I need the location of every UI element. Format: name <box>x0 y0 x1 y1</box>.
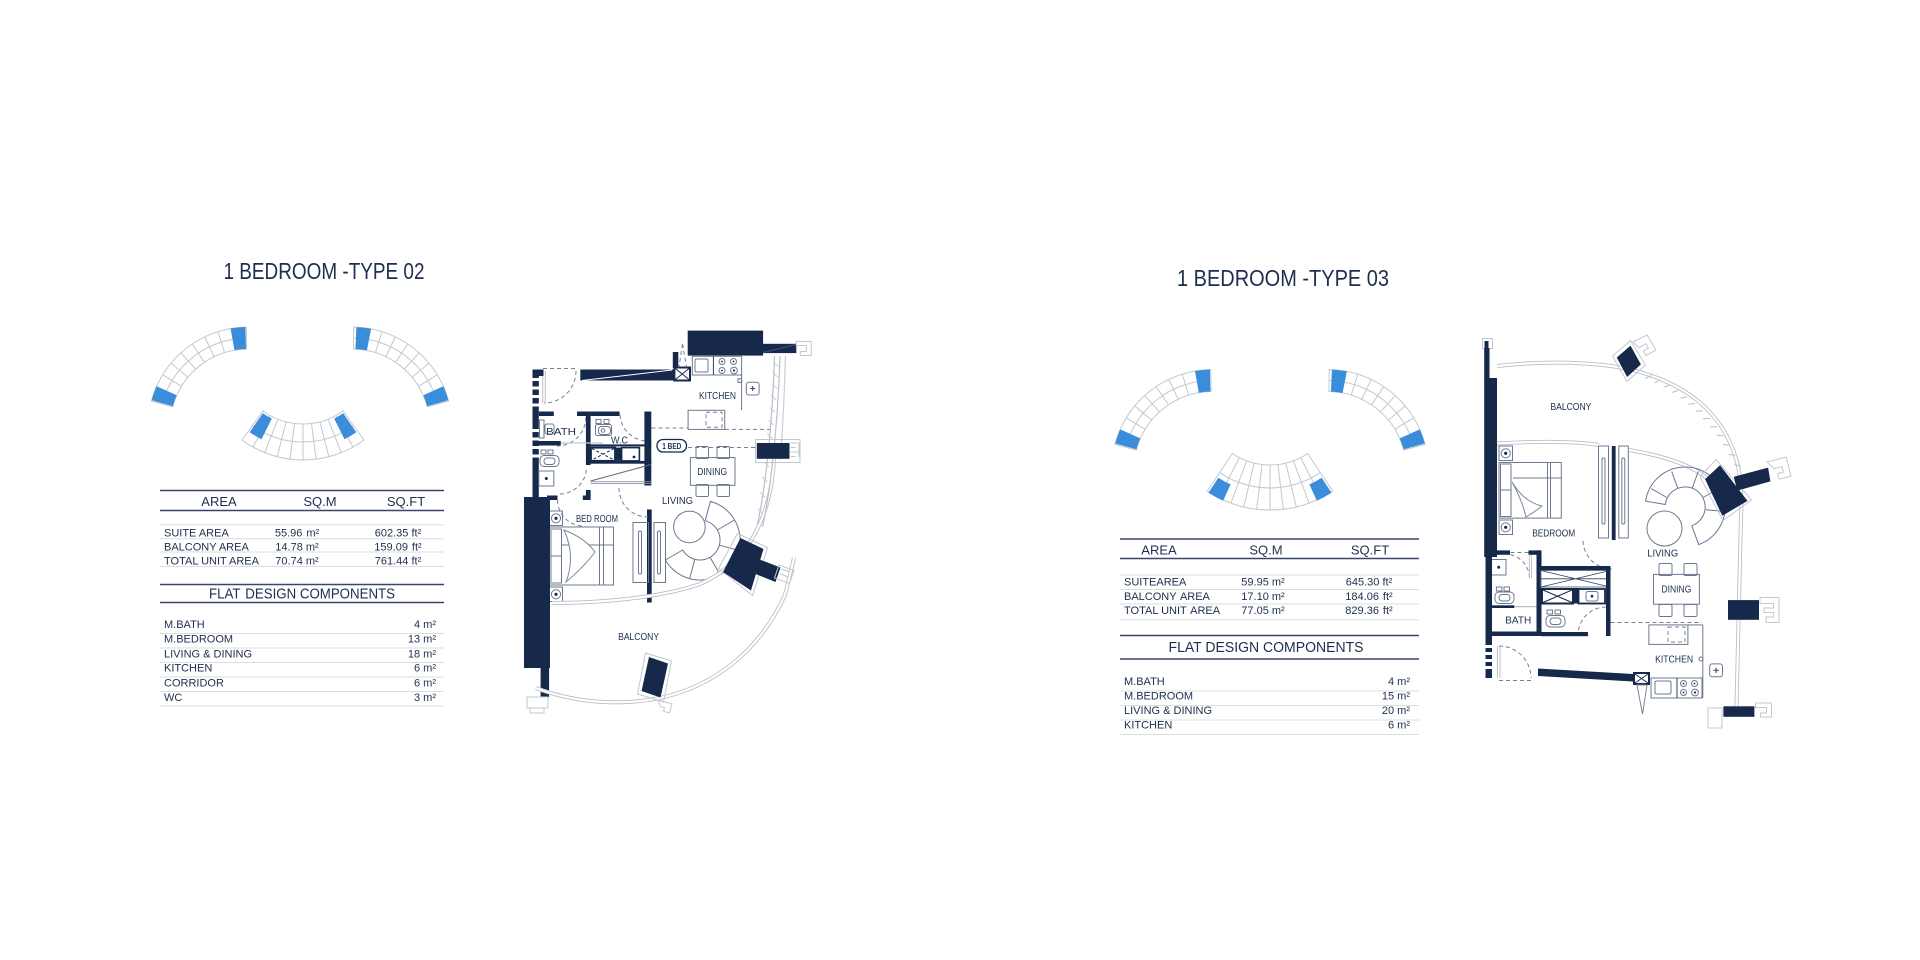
svg-text:6 m²: 6 m² <box>414 663 436 675</box>
svg-text:SQ.FT: SQ.FT <box>1351 543 1389 558</box>
svg-text:WC: WC <box>164 692 182 704</box>
svg-text:FLAT DESIGN COMPONENTS: FLAT DESIGN COMPONENTS <box>209 587 395 603</box>
svg-text:17.10 m²: 17.10 m² <box>1241 591 1285 603</box>
svg-text:AREA: AREA <box>201 494 237 509</box>
svg-text:77.05 m²: 77.05 m² <box>1241 605 1285 617</box>
svg-text:KITCHEN: KITCHEN <box>699 390 736 402</box>
svg-text:M.BEDROOM: M.BEDROOM <box>1124 691 1193 703</box>
svg-text:LIVING & DINING: LIVING & DINING <box>164 648 252 660</box>
svg-text:BATH: BATH <box>546 426 576 438</box>
svg-text:645.30 ft²: 645.30 ft² <box>1346 576 1393 588</box>
svg-text:FLAT DESIGN COMPONENTS: FLAT DESIGN COMPONENTS <box>1169 640 1364 656</box>
svg-text:TOTAL UNIT AREA: TOTAL UNIT AREA <box>164 556 260 568</box>
svg-text:SUITEAREA: SUITEAREA <box>1124 576 1187 588</box>
svg-text:M.BATH: M.BATH <box>1124 676 1165 688</box>
svg-text:13 m²: 13 m² <box>408 634 436 646</box>
svg-text:59.95 m²: 59.95 m² <box>1241 576 1285 588</box>
svg-text:AREA: AREA <box>1141 543 1177 558</box>
svg-text:1 BED: 1 BED <box>662 441 681 451</box>
svg-text:BATH: BATH <box>1505 615 1531 627</box>
svg-text:TOTAL UNIT AREA: TOTAL UNIT AREA <box>1124 605 1221 617</box>
svg-text:4 m²: 4 m² <box>414 619 436 631</box>
svg-text:70.74 m²: 70.74 m² <box>275 556 319 568</box>
svg-text:1 BEDROOM -TYPE 03: 1 BEDROOM -TYPE 03 <box>1177 265 1389 291</box>
svg-text:3 m²: 3 m² <box>414 692 436 704</box>
svg-text:M.BATH: M.BATH <box>164 619 205 631</box>
svg-text:KITCHEN: KITCHEN <box>164 663 212 675</box>
svg-text:1 BEDROOM -TYPE 02: 1 BEDROOM -TYPE 02 <box>224 258 425 284</box>
svg-text:CORRIDOR: CORRIDOR <box>164 677 224 689</box>
svg-text:184.06 ft²: 184.06 ft² <box>1345 591 1393 603</box>
svg-text:BALCONY: BALCONY <box>1550 401 1591 413</box>
svg-text:829.36 ft²: 829.36 ft² <box>1345 605 1393 617</box>
svg-text:20 m²: 20 m² <box>1382 705 1410 717</box>
svg-text:LIVING: LIVING <box>1647 548 1678 560</box>
svg-text:BALCONY: BALCONY <box>618 631 659 643</box>
svg-text:761.44 ft²: 761.44 ft² <box>375 556 422 568</box>
svg-text:KITCHEN: KITCHEN <box>1124 720 1172 732</box>
svg-text:LIVING: LIVING <box>662 495 693 507</box>
svg-text:BALCONY AREA: BALCONY AREA <box>1124 591 1211 603</box>
svg-text:DINING: DINING <box>1661 584 1691 596</box>
svg-text:18 m²: 18 m² <box>408 648 436 660</box>
svg-text:55.96 m²: 55.96 m² <box>275 527 320 539</box>
svg-text:LIVING & DINING: LIVING & DINING <box>1124 705 1212 717</box>
svg-text:SQ.M: SQ.M <box>303 494 336 509</box>
svg-text:DINING: DINING <box>697 466 727 478</box>
svg-text:M.BEDROOM: M.BEDROOM <box>164 634 233 646</box>
svg-text:4 m²: 4 m² <box>1388 676 1410 688</box>
svg-text:BEDROOM: BEDROOM <box>1532 528 1575 540</box>
svg-text:15 m²: 15 m² <box>1382 691 1410 703</box>
svg-text:SQ.FT: SQ.FT <box>387 494 425 509</box>
svg-text:KITCHEN: KITCHEN <box>1655 654 1693 666</box>
svg-text:SQ.M: SQ.M <box>1249 543 1282 558</box>
svg-text:6 m²: 6 m² <box>1388 720 1410 732</box>
svg-text:SUITE AREA: SUITE AREA <box>164 527 229 539</box>
svg-text:602.35 ft²: 602.35 ft² <box>375 527 422 539</box>
svg-text:BED ROOM: BED ROOM <box>576 513 618 525</box>
svg-text:6 m²: 6 m² <box>414 677 436 689</box>
